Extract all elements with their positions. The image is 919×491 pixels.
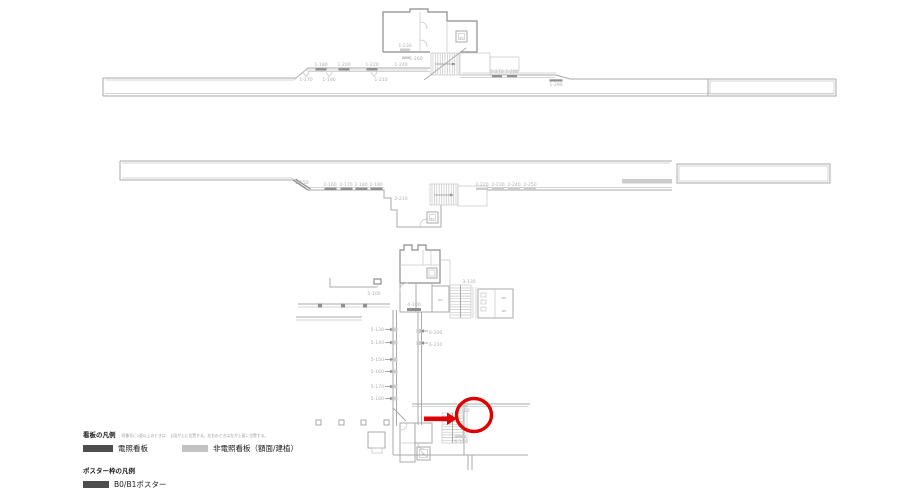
bottom-tall-room [400,423,415,462]
sign-bar [339,68,350,70]
column-tick [341,304,345,308]
column-square [339,420,344,425]
sign-label: 2-250 [523,182,536,188]
sign-label: 5-140 [371,340,384,346]
elevator-box-concourse-inner [429,270,435,276]
left-l-wall [330,278,377,287]
bottom-tall-room-interior [400,423,415,443]
platform1-kiosk [490,57,519,71]
station-signboard-map-page: EV 1-180 1-200 1-220 1-170 1-190 1-210 1… [0,0,919,491]
stairs-concourse-landing [473,287,476,318]
sign-label: 1-210 [374,77,387,83]
legend-item-non-illuminated: 非電照看板（額面/建植） [182,443,298,454]
sign-label: 3-130 [462,279,475,285]
sign-label: 2-160 [323,182,336,188]
platform1-building-interior [420,12,447,52]
bottom-right-room [415,423,432,443]
legend-item-illuminated: 電照看板 [83,443,148,454]
wc-fixture [481,293,486,297]
sign-label: 6-200 [429,330,442,336]
sign-label: 6-210 [429,342,442,348]
sign-bar [367,68,378,70]
legend-swatch-non-illuminated [182,445,208,452]
concourse-building-interior [400,250,450,285]
legend-sign-title: 看板の凡例 [83,429,116,439]
bottom-right-room-door [418,443,424,449]
platform1-landing [460,53,490,75]
sign-label: 1-180 [314,62,327,68]
sign-label: 1-280 [505,69,518,75]
wc-label: WC [501,296,506,300]
sign-label: 1-240 [394,62,407,68]
column-square [384,420,389,425]
corridor-left-wall [393,310,397,455]
sign-label: 2-220 [475,182,488,188]
platform2-gray-strip [622,179,672,184]
sign-label: 1-290 [549,82,562,88]
column-tick [363,304,367,308]
legend-sign-title-row: 看板の凡例 同番号に2面以上のときは、上段が上に位置する。左右のときは左が上面に… [83,429,383,439]
stairs-p1-arrowhead [452,63,456,66]
sign-bar [550,79,563,81]
legend-swatch-illuminated [83,445,113,452]
concourse-building-outline [400,245,440,283]
corridor-right-wall [418,312,422,425]
sign-label: 1-270 [490,69,503,75]
legend-poster-title: ポスター枠の凡例 [83,465,383,475]
platform2-right-shelter [677,164,830,183]
legend-item-poster: B0/B1ポスター [83,479,383,490]
platform-1-section: EV 1-180 1-200 1-220 1-170 1-190 1-210 1… [103,9,836,96]
sign-bar [492,75,502,77]
sign-label: 5-100 [367,291,380,297]
sign-label: 1-230 [398,43,411,49]
sign-label: 2-180 [354,182,367,188]
platform2-right-shelter-inner [679,166,828,181]
column-tick [318,304,322,308]
sign-bar [316,68,327,70]
sign-bar [407,308,421,311]
sign-label: 1-200 [337,62,350,68]
column-square [361,420,366,425]
wc-block [478,289,513,318]
platform2-inner-lines [122,163,672,188]
sign-label: 5-160 [371,369,384,375]
legend-label-non-illuminated: 非電照看板（額面/建植） [213,443,298,454]
legend-sign-note: 同番号に2面以上のときは、上段が上に位置する。左右のときは左が上面に位置する。 [122,433,269,439]
sign-label: 2-210 [394,196,407,202]
sign-label: 2-150 [295,180,308,186]
sign-bar [455,436,466,438]
label-arrow-lines-left [385,330,390,399]
platform1-right-shelter [710,81,834,94]
sign-label: 2-170 [339,182,352,188]
label-arrow-lines-right [423,331,428,343]
sign-post-box [374,279,381,284]
concourse-door-arc [400,283,408,291]
elevator-box-concourse [427,268,437,278]
sign-label: 5-170 [371,384,384,390]
legend-swatch-poster [83,481,109,488]
platform1-outline [103,68,836,96]
sign-label: 5-130 [371,327,384,333]
sign-label: 6-130 [454,439,467,445]
platform1-inner-lines [105,70,834,94]
highlight-arrow-shaft [424,417,447,422]
sign-label: 1-220 [365,62,378,68]
wc-label: WC [501,309,506,313]
sign-label: 5-180 [371,396,384,402]
legend-label-illuminated: 電照看板 [118,443,148,454]
sign-label: 2-190 [369,182,382,188]
column-square [316,420,321,425]
legend: 看板の凡例 同番号に2面以上のときは、上段が上に位置する。左右のときは左が上面に… [83,429,383,490]
sign-label: 2-230 [491,182,504,188]
sign-label: 1-190 [322,77,335,83]
wc-fixture [481,307,486,311]
platform2-outline [120,161,672,227]
wc-label: WC [438,298,443,302]
sign-bar [507,75,517,77]
sign-label: 1-260 [409,56,422,62]
wc-fixture [481,300,486,304]
sign-label: 4-100 [407,302,420,308]
sign-label: 1-170 [299,77,312,83]
sign-label: 2-240 [507,182,520,188]
highlight-circle [457,399,492,432]
bottom-walls-inner [412,407,528,444]
legend-label-poster: B0/B1ポスター [114,479,166,490]
sign-tick-triangles [303,72,377,77]
legend-sign-items: 電照看板 非電照看板（額面/建植） [83,443,383,454]
station-floorplan: EV 1-180 1-200 1-220 1-170 1-190 1-210 1… [0,0,919,491]
sign-label: 5-150 [371,357,384,363]
platform-2-section: EV 2-150 2-160 2-170 2-180 2-190 2-210 2… [120,161,830,227]
corridor-diagonal-wall [393,408,406,421]
